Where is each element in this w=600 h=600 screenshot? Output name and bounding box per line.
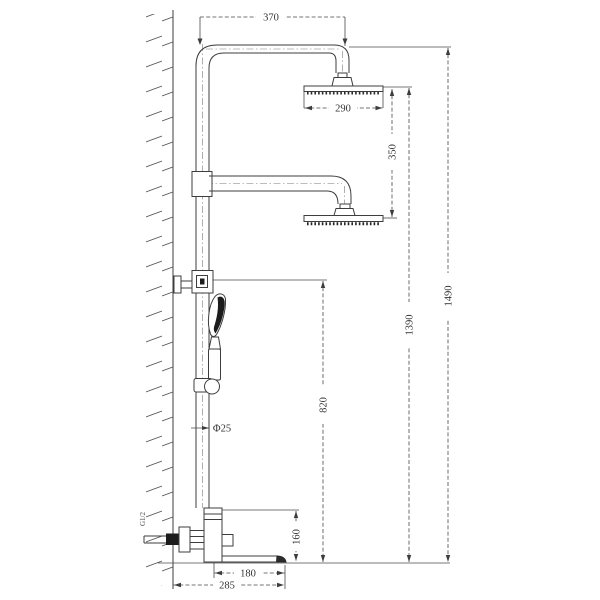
dim-top-arm-width: 370 [198,12,348,46]
dim-bracket-height: 820 [318,281,330,562]
top-head-connector [332,73,353,86]
dim-label-285: 285 [219,581,235,592]
dim-head-height: 1390 [404,88,416,562]
dim-label-180: 180 [240,569,256,580]
dim-inlet-thread: G1/2 [139,512,147,527]
dim-label-1490: 1490 [444,286,455,307]
spout-tip [276,556,287,563]
dim-label-phi25: Φ25 [213,424,231,435]
supply-hex-nut [190,531,204,550]
dim-label-370: 370 [263,13,279,24]
dim-label-820: 820 [319,397,330,413]
dim-label-g12: G1/2 [139,512,147,527]
dim-label-1390: 1390 [405,315,416,336]
hand-shower-handle [209,349,221,380]
wall-hatching [146,14,173,586]
mixer-knob [222,535,233,547]
riser-pipe [196,45,349,508]
shower-column-drawing: 370 290 350 820 1390 [0,0,600,600]
wall [146,10,173,589]
supply-flange [179,527,190,552]
dim-label-290: 290 [335,104,351,115]
slider-knob [205,379,220,394]
dim-overall-reach: 285 [173,580,285,592]
lower-shower-head [304,216,383,224]
dim-spout-block-height: 160 [291,511,303,561]
wall-bracket [174,271,213,294]
arm-collar [192,172,212,197]
dim-head-width: 290 [304,92,383,115]
technical-drawing-canvas: 370 290 350 820 1390 [0,0,600,600]
dim-pipe-diameter: Φ25 [191,424,231,435]
dim-label-160: 160 [292,529,303,545]
dim-heads-gap: 350 [387,89,399,217]
dim-label-350: 350 [388,144,399,160]
mixer-body [204,508,233,562]
top-shower-head [304,86,383,93]
hand-shower-neck [209,337,221,349]
hand-shower [194,294,226,394]
lower-shower-arm [192,172,355,216]
dim-overall-height: 1490 [443,48,455,562]
